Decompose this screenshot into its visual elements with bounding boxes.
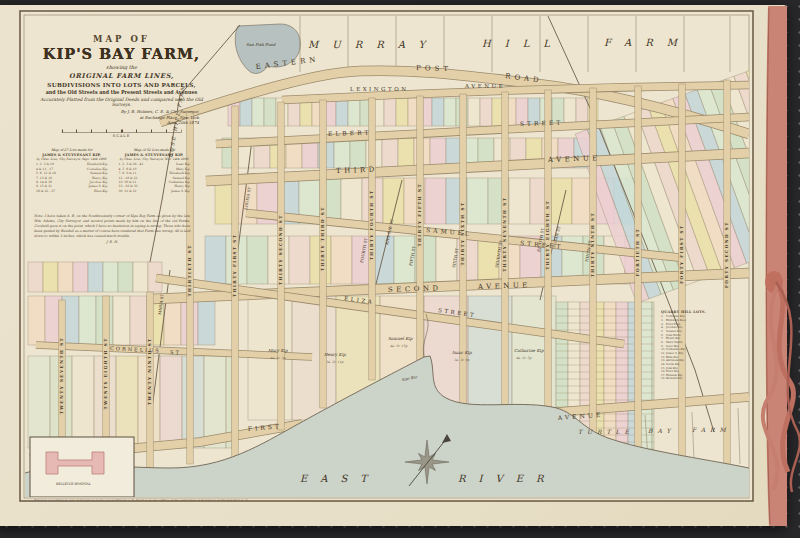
scale-label: SCALE	[34, 134, 209, 138]
scale-bar	[62, 130, 182, 134]
lot-owner-name: Isaac Kip	[452, 350, 472, 355]
lot-parcel	[480, 98, 492, 126]
street-label: THIRTY SEVENTH ST	[502, 197, 507, 272]
street-label: THIRTY FOURTH ST	[369, 190, 374, 261]
binding-cloth-edge	[763, 6, 800, 526]
lot-parcel	[43, 262, 58, 292]
street-label: THIRTY EIGHTH ST	[545, 200, 550, 270]
map-label-bay: BAY	[648, 427, 675, 434]
street-label: THIRTY FIRST ST	[232, 234, 237, 297]
map-label-hill: HILL	[482, 38, 564, 49]
quarry-list-rows: 1.Cornelius Kip2.Elizabeth Ross3.Peter P…	[661, 315, 747, 381]
map-label-avenue: AVENUE	[464, 83, 505, 89]
lot-parcel	[133, 262, 148, 292]
lot-parcel	[73, 262, 88, 292]
lot-parcel	[88, 262, 103, 292]
lot-parcel	[205, 236, 226, 284]
title-old-streets: and the Old Streets and the Present Stre…	[34, 89, 209, 95]
lot-parcel	[113, 296, 130, 345]
surveyor-note: Note. I have taken A. B. on the Southwes…	[34, 214, 190, 245]
legend-row: 30. 31 & 32James S. Kip	[117, 188, 193, 192]
legend2-rows: 1. 2. 3 & 38 - 42Isaac Kip4. 5. 6 & 10Ma…	[117, 162, 193, 192]
lot-parcel	[79, 296, 96, 345]
lot-parcel	[130, 296, 147, 345]
copyright-imprint: Entered according to Act of Congress in …	[34, 498, 334, 501]
lot-parcel	[336, 98, 348, 126]
lot-parcel	[28, 296, 45, 345]
quarry-hill-lots-list: QUARRY HILL LOTS. 1.Cornelius Kip2.Eliza…	[661, 309, 747, 380]
lot-parcel	[118, 262, 133, 292]
lot-parcel	[432, 98, 444, 126]
street-label: THIRTY THIRD ST	[320, 206, 325, 271]
lot-parcel	[58, 262, 73, 292]
street-label: THIRTY FIFTH ST	[417, 183, 422, 247]
lot-owner-name: Catharine Kip	[514, 348, 544, 353]
note-text: Note. I have taken A. B. on the Southwes…	[34, 214, 190, 238]
street-label: FORTIETH ST	[635, 228, 640, 276]
map-label-post: POST	[416, 64, 452, 73]
title-subdivisions: SUBDIVISIONS INTO LOTS AND PARCELS,	[34, 81, 209, 88]
lot-parcel	[425, 178, 446, 224]
lot-parcel	[289, 236, 310, 284]
lot-parcel	[160, 356, 182, 448]
page-title: KIP'S BAY FARM,	[34, 45, 209, 63]
bellevue-inset-box	[30, 437, 134, 497]
quarry-list-item: 18.Richard Kip	[661, 377, 747, 381]
lot-parcel	[382, 138, 398, 168]
lot-parcel	[116, 356, 138, 448]
lot-parcel	[331, 236, 352, 284]
legend-table-1806-sept: Map of 27 Lots made for JAMES & STUYVESA…	[34, 148, 110, 193]
title-map-of: MAP OF	[34, 34, 209, 45]
legend-table-1806-nov: Map of 42 Lots made for JAMES & STUYVESA…	[117, 148, 193, 193]
lot-parcel	[468, 98, 480, 126]
lot-parcel	[444, 98, 456, 126]
lot-area-note: 4a. 1r. 3p.	[270, 356, 286, 360]
map-label-bellevue-hospital: BELLEVUE HOSPITAL	[56, 482, 91, 486]
map-label-murray: MURRAY	[308, 39, 439, 50]
lot-owner-name: Samuel Kip	[388, 336, 413, 341]
map-label-turtle: TURTLE	[578, 428, 634, 435]
street-label: TWENTY SEVENTH ST	[59, 337, 64, 414]
title-block: MAP OF KIP'S BAY FARM, showing the ORIGI…	[34, 34, 209, 138]
lot-parcel	[334, 138, 350, 168]
lot-parcel	[509, 178, 530, 224]
lot-parcel	[264, 98, 276, 126]
legend1-rows: 1. 2. 3 & 10Elizabeth Kip4 & 11 - 17Corn…	[34, 162, 110, 192]
legend-tables: Map of 27 Lots made for JAMES & STUYVESA…	[34, 148, 192, 193]
street-label: THIRTIETH ST	[187, 244, 192, 296]
lot-parcel	[640, 302, 652, 466]
street-label: FORTY SECOND ST	[724, 221, 729, 288]
legend1-line3: by Chas. Loss, City Surveyor, Sept. 14th…	[34, 157, 110, 161]
lot-area-note: 3a. 2r. 11p.	[326, 360, 344, 364]
lot-owner-name: Henry Kip	[324, 352, 346, 357]
lot-parcel	[247, 236, 268, 284]
lot-parcel	[384, 98, 396, 126]
legend2-line3: by Chas. Loss, City Surveyor, Nov. 14th …	[117, 157, 193, 161]
quarry-list-title: QUARRY HILL LOTS.	[661, 309, 747, 314]
lot-parcel	[252, 98, 264, 126]
lot-area-note: 3a. 3r. 9p.	[454, 358, 470, 362]
map-label-farm: FARM	[692, 426, 731, 433]
lot-parcel	[72, 356, 94, 448]
lot-parcel	[28, 262, 43, 292]
lot-area-note: 4a. 0r. 15p.	[390, 344, 408, 348]
lot-parcel	[28, 356, 50, 448]
lot-parcel	[467, 178, 488, 224]
title-accuracy: Accurately Platted from the Original Dee…	[34, 96, 209, 107]
lot-parcel	[398, 138, 414, 168]
lot-area-note: 4a. 2r. 5p.	[516, 356, 532, 360]
lot-parcel	[652, 302, 654, 466]
street-label: FORTY FIRST ST	[679, 224, 684, 283]
title-showing: showing the	[34, 64, 209, 70]
lot-parcel	[198, 296, 215, 345]
title-original-farm-lines: ORIGINAL FARM LINES,	[34, 72, 209, 80]
byline-date: April 20th 1874	[34, 120, 199, 125]
map-label-east: EAST	[300, 473, 380, 484]
map-label-st: ST	[170, 349, 181, 356]
map-label-lexington: LEXINGTON	[350, 86, 408, 92]
map-label-third: THIRD	[336, 166, 378, 175]
legend-row: 16 & 22 - 27Eliza Kip	[34, 188, 110, 192]
atlas-photo: TWENTY SEVENTH STTWENTY EIGHTH STTWENTY …	[0, 0, 800, 538]
map-label-river: RIVER	[458, 473, 557, 484]
note-signature: J. B. H.	[34, 240, 190, 245]
street-label: THIRTY SECOND ST	[278, 214, 283, 285]
map-label-sun-fish-pond: Sun Fish Pond	[246, 42, 276, 47]
lot-parcel	[350, 138, 366, 168]
lot-owner-name: Mary Kip	[268, 348, 288, 353]
lot-parcel	[103, 262, 118, 292]
lot-parcel	[341, 178, 362, 224]
map-label-farm: FARM	[604, 37, 691, 48]
lot-parcel	[551, 178, 572, 224]
lot-parcel	[240, 98, 252, 126]
lot-parcel	[396, 98, 408, 126]
street-label: TWENTY EIGHTH ST	[103, 337, 108, 409]
lot-parcel	[348, 98, 360, 126]
